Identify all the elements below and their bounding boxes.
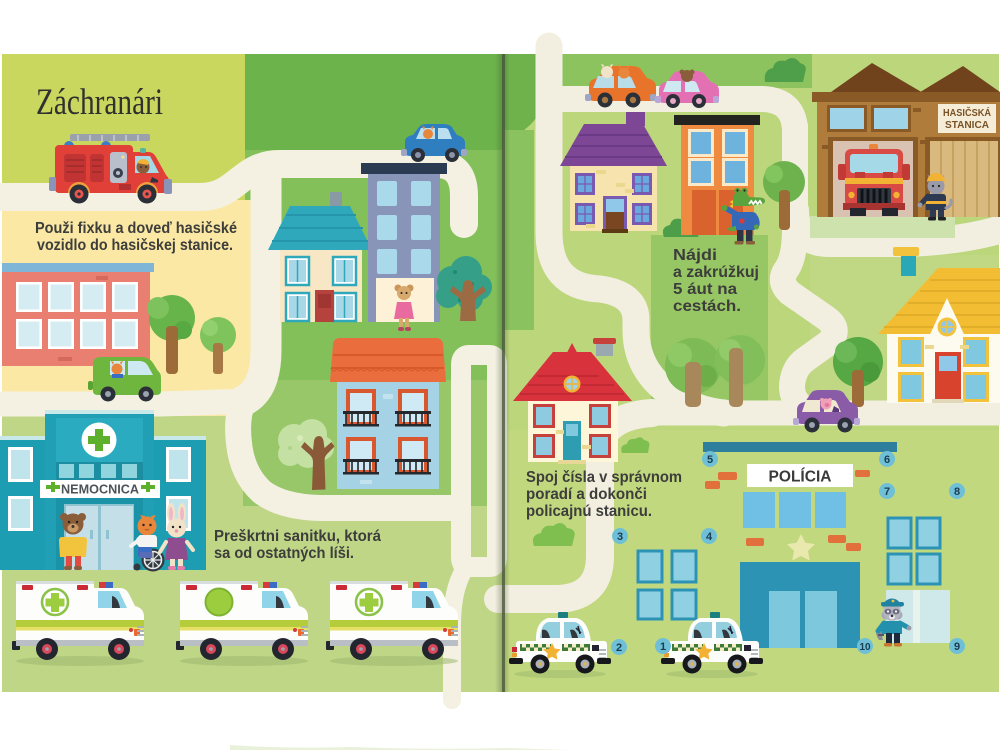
svg-text:cestách.: cestách. xyxy=(673,298,741,315)
svg-text:Záchranári: Záchranári xyxy=(36,82,163,123)
svg-text:a zakrúžkuj: a zakrúžkuj xyxy=(673,264,759,281)
svg-text:Použi fixku a doveď hasičské: Použi fixku a doveď hasičské xyxy=(35,220,237,237)
svg-text:9: 9 xyxy=(954,641,960,653)
svg-text:6: 6 xyxy=(884,454,890,466)
svg-text:Spoj čísla v správnom: Spoj čísla v správnom xyxy=(526,469,682,486)
svg-text:vozidlo do hasičskej stanice.: vozidlo do hasičskej stanice. xyxy=(37,237,233,254)
svg-text:2: 2 xyxy=(616,642,622,654)
svg-text:4: 4 xyxy=(706,531,713,543)
svg-text:10: 10 xyxy=(859,642,871,653)
svg-text:sa od ostatných líši.: sa od ostatných líši. xyxy=(214,545,354,562)
svg-text:5 áut na: 5 áut na xyxy=(673,281,737,298)
svg-text:poradí a dokonči: poradí a dokonči xyxy=(526,486,647,503)
svg-text:5: 5 xyxy=(707,454,713,466)
svg-text:7: 7 xyxy=(884,486,890,498)
svg-text:STANICA: STANICA xyxy=(945,120,989,131)
svg-text:policajnú stanicu.: policajnú stanicu. xyxy=(526,503,652,520)
svg-text:1: 1 xyxy=(660,641,666,653)
svg-text:NEMOCNICA: NEMOCNICA xyxy=(61,483,139,497)
svg-text:Nájdi: Nájdi xyxy=(673,247,717,264)
svg-text:8: 8 xyxy=(954,486,960,498)
svg-text:POLÍCIA: POLÍCIA xyxy=(769,467,832,486)
svg-text:HASIČSKÁ: HASIČSKÁ xyxy=(943,106,991,119)
svg-text:Preškrtni sanitku, ktorá: Preškrtni sanitku, ktorá xyxy=(214,528,381,545)
svg-text:3: 3 xyxy=(617,531,623,543)
